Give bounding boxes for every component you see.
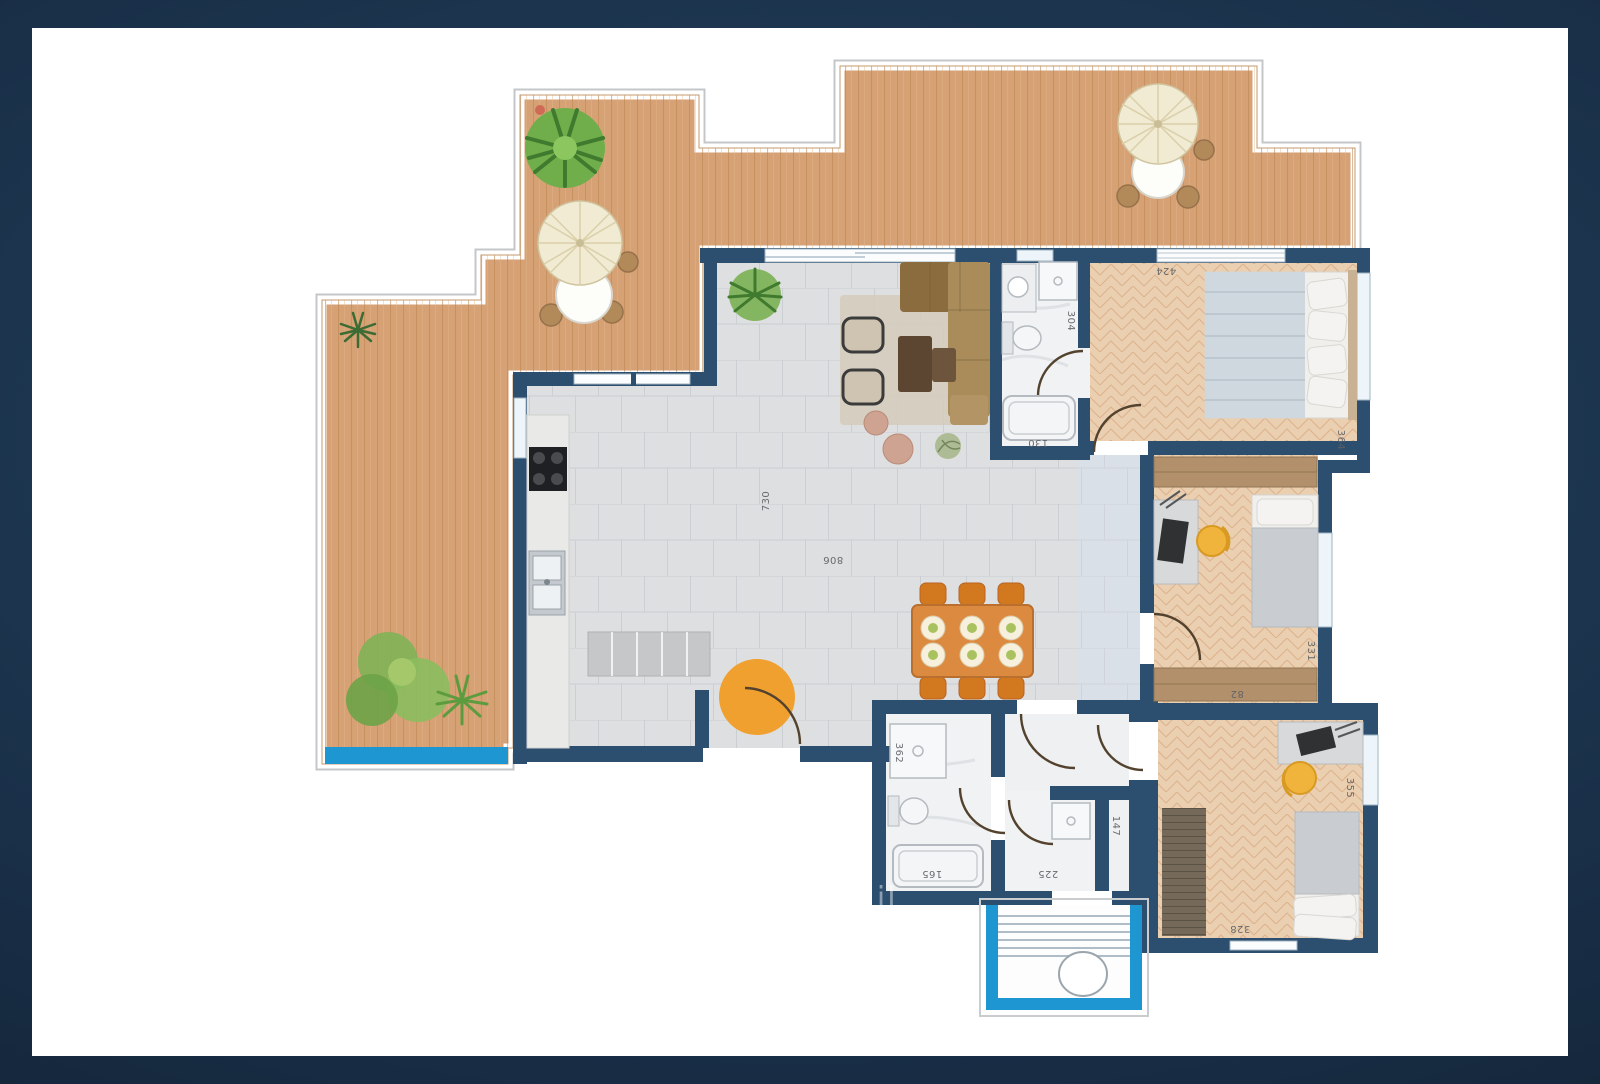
wall-living-upper-left — [704, 248, 717, 378]
wall-hall-bedroom2-b — [1140, 664, 1154, 703]
bathroom2-toilet-tank — [888, 796, 899, 826]
watermark: o il — [845, 881, 898, 916]
terrace-pool-strip — [325, 747, 508, 764]
deck-plant-red-accent — [535, 105, 545, 115]
floor-plan-drawing: 730 806 304 130 424 364 331 82 355 147 2… — [0, 0, 1600, 1084]
coffee-table — [898, 336, 932, 392]
kitchen-island — [588, 632, 710, 676]
bathroom-top-sink — [1008, 277, 1028, 297]
sink-basin-bottom — [533, 585, 561, 609]
dim-hallway-depth: 147 — [1110, 816, 1121, 837]
bedroom2-blanket — [1252, 528, 1318, 627]
sofa-chaise-end — [950, 395, 988, 425]
pouf-2 — [883, 434, 913, 464]
step-wall-window-mullion — [631, 372, 636, 386]
patio-umbrella-1 — [538, 201, 622, 285]
vestibule-floor — [1005, 714, 1129, 791]
wall-bathroom-top-right-a — [1078, 248, 1090, 348]
dining-chair-3 — [998, 583, 1024, 605]
bedroom1-right-window — [1357, 273, 1370, 400]
living-plant — [935, 433, 961, 459]
bathroom2-toilet — [900, 798, 928, 824]
dim-bedroom2-depth: 331 — [1305, 641, 1316, 662]
wall-jog-bedroom1-2 — [1318, 460, 1370, 473]
entrance-mat — [719, 659, 795, 735]
bedroom3-chair — [1284, 762, 1316, 794]
wall-bath-left — [872, 700, 886, 905]
entrance-wall-left — [986, 905, 998, 1010]
wall-bathroom-top-left — [990, 248, 1002, 460]
living-sliding-door — [765, 249, 955, 262]
dining-chair-6 — [998, 677, 1024, 699]
entrance-basin — [1059, 952, 1107, 996]
dim-bedroom2-wardrobe: 82 — [1230, 688, 1244, 699]
dim-bathroom-top-depth: 304 — [1065, 311, 1076, 332]
dim-living-depth: 730 — [761, 491, 772, 512]
bathroom-top-toilet — [1013, 326, 1041, 350]
coffee-table-2 — [932, 348, 956, 382]
sink-faucet — [544, 579, 550, 585]
floor-plan-page: 730 806 304 130 424 364 331 82 355 147 2… — [0, 0, 1600, 1084]
dim-bedroom3-depth: 355 — [1344, 778, 1355, 799]
bedroom2-right-window — [1318, 533, 1332, 627]
entrance-stairs — [980, 899, 1148, 1016]
bedroom1-headboard — [1348, 270, 1357, 420]
bedroom1-top-window — [1157, 249, 1285, 262]
wall-bath2-vestibule-a — [991, 714, 1005, 777]
hallway-floor-grid — [1078, 455, 1140, 700]
dim-bathroom2-depth: 362 — [893, 743, 904, 764]
patio-chair-4 — [1117, 185, 1139, 207]
bathroom-top-window — [1017, 250, 1053, 261]
bedroom2-chair — [1197, 526, 1227, 556]
wall-bedroom1-bottom-b — [1148, 441, 1357, 455]
wall-bath2-vestibule-b — [991, 840, 1005, 891]
niche-floor — [1109, 800, 1129, 891]
bedroom2-pillow — [1257, 499, 1313, 525]
sofa-right-section — [948, 262, 990, 417]
left-wall-window — [514, 398, 526, 458]
palm-plant — [729, 269, 781, 321]
dim-bedroom1-width: 424 — [1156, 265, 1177, 276]
patio-umbrella-2 — [1118, 84, 1198, 164]
wall-shower-niche — [1095, 800, 1109, 891]
bedroom1-blanket — [1205, 272, 1305, 418]
pouf-1 — [864, 411, 888, 435]
wall-hall-bedroom2-a — [1140, 455, 1154, 613]
entrance-floor — [986, 905, 1142, 1010]
stove — [529, 447, 567, 491]
dim-bathroom-top-width: 130 — [1028, 437, 1049, 448]
wall-bedroom2-bottom — [1129, 703, 1378, 720]
armchair-1 — [843, 318, 883, 352]
wall-entry-stub — [695, 690, 709, 748]
sink-basin-top — [533, 556, 561, 580]
dining-chair-1 — [920, 583, 946, 605]
wall-bath-top-a — [872, 700, 1017, 714]
dim-bedroom1-depth: 364 — [1335, 430, 1346, 451]
bedroom1-furniture — [1205, 270, 1357, 420]
bathroom-top-shower — [1039, 262, 1077, 300]
bathroom-top-toilet-tank — [1002, 322, 1013, 354]
shower-room-shower — [1052, 803, 1090, 839]
entrance-wall-right — [1130, 905, 1142, 1010]
dining-chair-2 — [959, 583, 985, 605]
bedroom3-blanket — [1295, 812, 1359, 894]
armchair-2 — [843, 370, 883, 404]
dim-shower-room-width: 225 — [1038, 868, 1059, 879]
dining-chair-5 — [959, 677, 985, 699]
patio-chair-6 — [1194, 140, 1214, 160]
dining-set — [912, 583, 1033, 699]
dim-bathroom2-width: 165 — [922, 868, 943, 879]
bedroom3-wardrobe-hatch — [1162, 808, 1206, 936]
dim-living-width: 806 — [823, 554, 844, 565]
bedroom3-bottom-window — [1230, 941, 1297, 950]
entrance-wall-bottom — [986, 998, 1142, 1010]
dim-bedroom3-width: 328 — [1230, 923, 1251, 934]
wall-vestibule-shower — [1050, 786, 1129, 800]
dining-chair-4 — [920, 677, 946, 699]
bedroom3-right-window — [1363, 735, 1378, 805]
patio-chair-5 — [1177, 186, 1199, 208]
